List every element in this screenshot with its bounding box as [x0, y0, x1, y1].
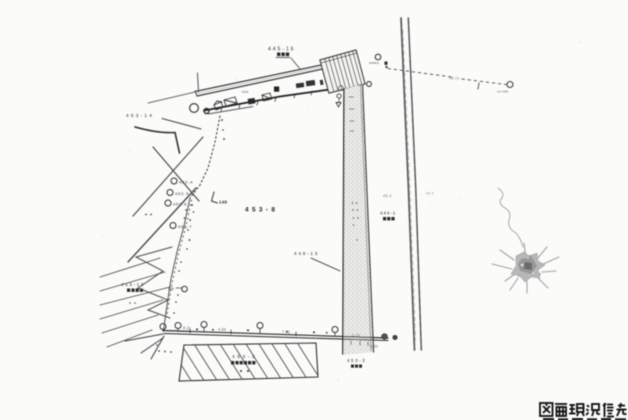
svg-text:453-4: 453-4 — [179, 180, 193, 185]
svg-text:45-3: 45-3 — [383, 194, 392, 198]
svg-text:453-6: 453-6 — [173, 202, 187, 207]
svg-text:449-13: 449-13 — [294, 251, 319, 256]
svg-text:44463: 44463 — [369, 61, 379, 65]
svg-text:6.01: 6.01 — [370, 345, 378, 349]
svg-text:4.50: 4.50 — [218, 328, 226, 332]
svg-text:14-456: 14-456 — [497, 90, 508, 94]
svg-text:mm: mm — [242, 90, 249, 94]
svg-text:453-2: 453-2 — [232, 354, 257, 360]
svg-text:146: 146 — [219, 200, 228, 205]
svg-text:44.1: 44.1 — [426, 192, 434, 196]
svg-text:453-7: 453-7 — [178, 224, 192, 229]
svg-text:453-5: 453-5 — [175, 191, 189, 196]
svg-text:444-1: 444-1 — [380, 211, 396, 216]
svg-text:453-8: 453-8 — [245, 207, 278, 214]
svg-text:453-14: 453-14 — [126, 113, 154, 119]
svg-text:14: 14 — [358, 83, 362, 87]
svg-text:1.77: 1.77 — [352, 334, 360, 338]
svg-text:453-3: 453-3 — [347, 358, 366, 363]
svg-text:445-16: 445-16 — [268, 47, 296, 53]
